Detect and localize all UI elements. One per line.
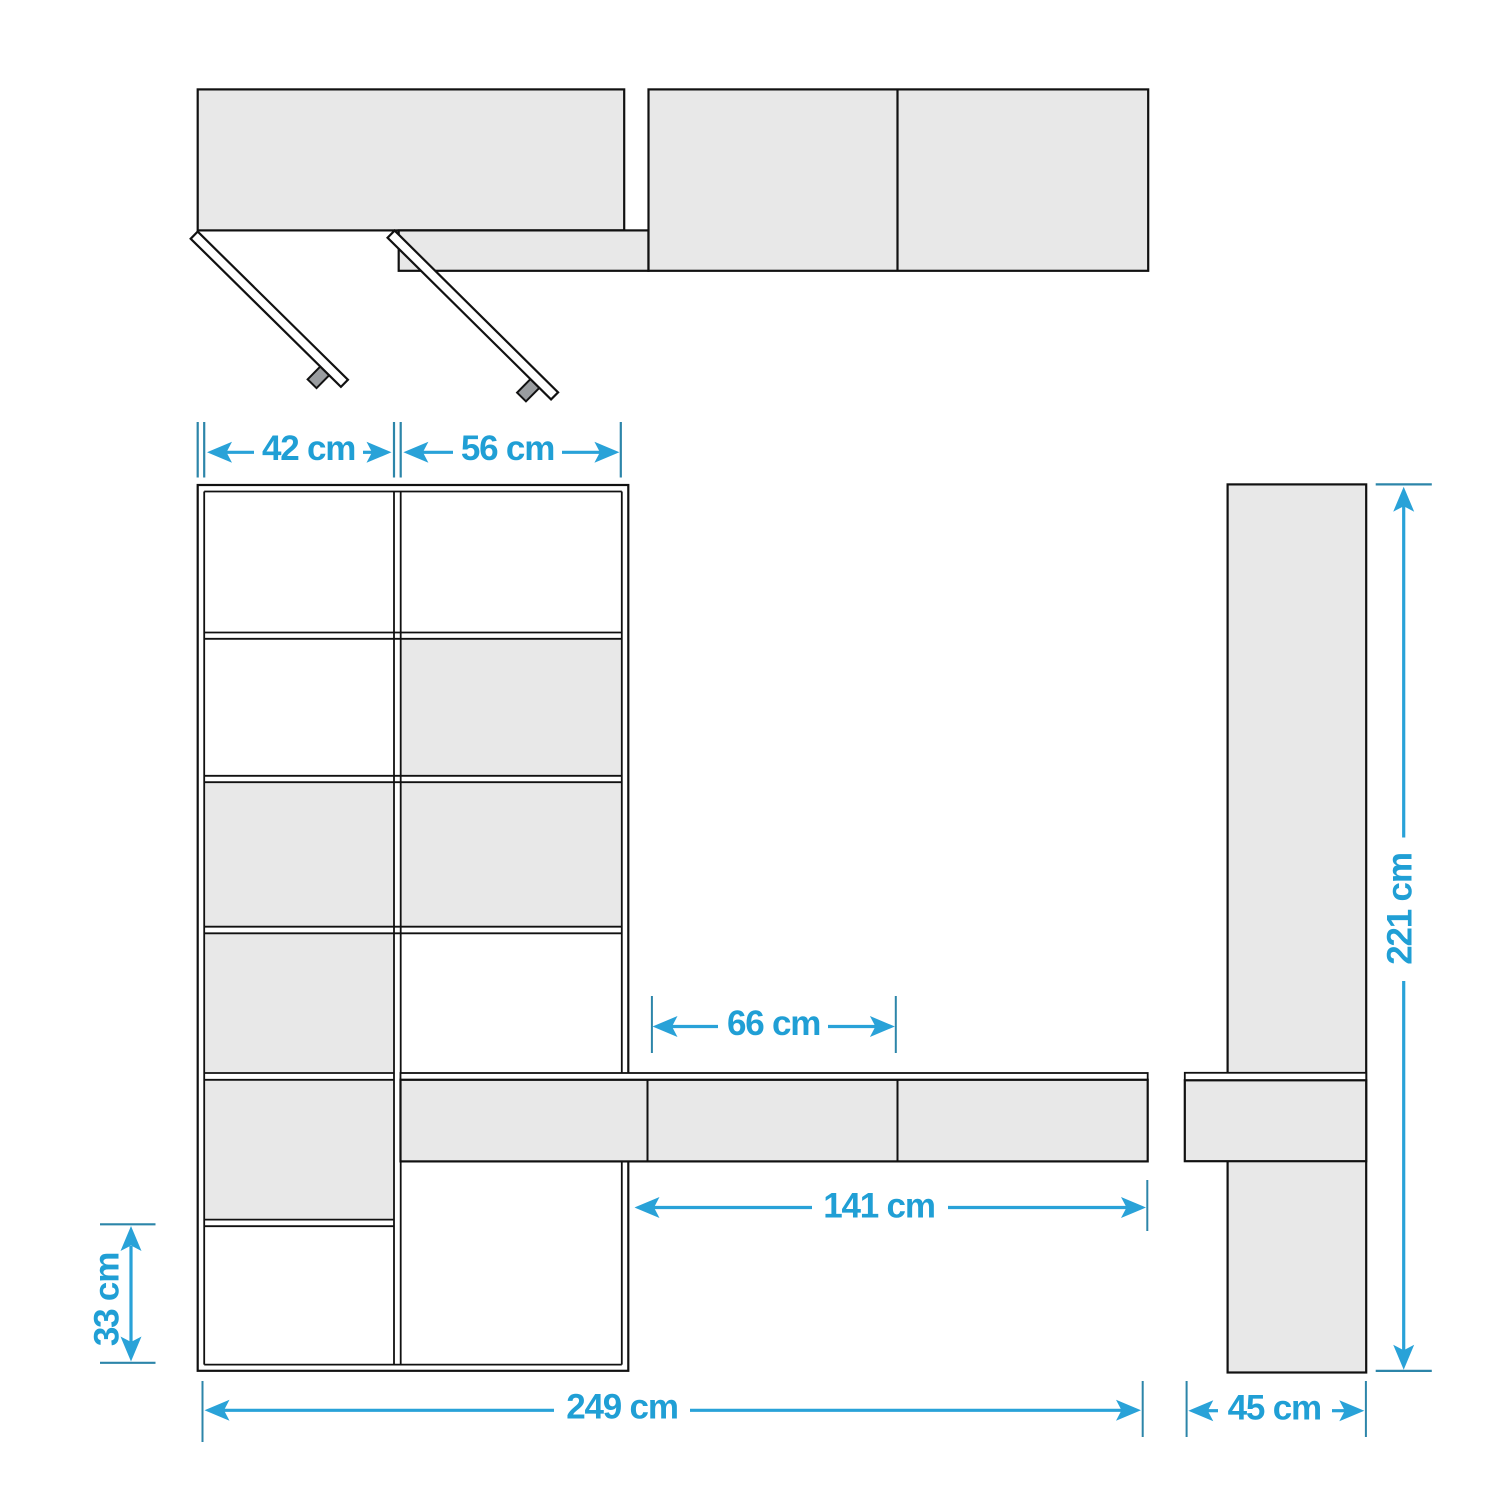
- svg-text:56 cm: 56 cm: [461, 429, 554, 468]
- svg-text:42 cm: 42 cm: [262, 429, 355, 468]
- svg-text:45 cm: 45 cm: [1228, 1389, 1321, 1428]
- svg-text:221 cm: 221 cm: [1381, 853, 1420, 965]
- svg-text:66 cm: 66 cm: [727, 1004, 820, 1043]
- svg-text:141 cm: 141 cm: [823, 1186, 935, 1225]
- svg-text:33 cm: 33 cm: [87, 1253, 126, 1346]
- svg-text:249 cm: 249 cm: [566, 1387, 678, 1426]
